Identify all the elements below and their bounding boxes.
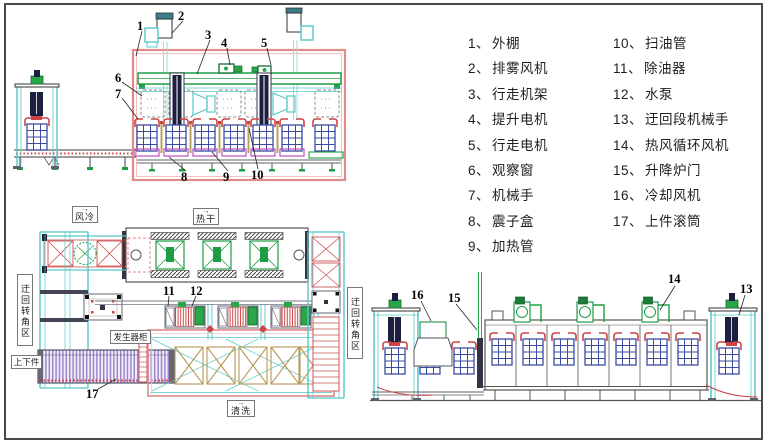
callout-17: 17 — [86, 388, 99, 401]
label-detour-corner-left: 迂回转角区 — [17, 274, 33, 346]
callout-11: 11 — [163, 285, 175, 298]
machine-base — [137, 160, 341, 172]
legend-column-1: 1、外棚 2、排雾风机 3、行走机架 4、提升电机 5、行走电机 6、观察窗 7… — [468, 31, 548, 260]
drawing-sheet: 1、外棚 2、排雾风机 3、行走机架 4、提升电机 5、行走电机 6、观察窗 7… — [0, 0, 768, 444]
legend-item: 14、热风循环风机 — [613, 133, 729, 158]
legend-item: 6、观察窗 — [468, 158, 548, 183]
callout-3: 3 — [205, 29, 211, 42]
legend-item: 12、水泵 — [613, 82, 729, 107]
legend-item: 13、迂回段机械手 — [613, 107, 729, 132]
cleaning-tank — [175, 347, 326, 384]
side-view-cleaning-line — [13, 8, 345, 180]
transfer-car — [84, 294, 122, 320]
label-detour-corner-right: 迂回转角区 — [347, 287, 363, 359]
callout-9: 9 — [223, 171, 229, 184]
basket — [717, 342, 741, 374]
roller-conveyor — [38, 350, 174, 383]
basket — [25, 118, 49, 150]
hot-air-circulation-fan — [577, 297, 604, 322]
detour-gantry-manipulator — [708, 293, 758, 401]
legend-item: 8、震子盒 — [468, 209, 548, 234]
detour-corridor-right — [308, 232, 344, 398]
callout-13: 13 — [740, 283, 753, 296]
pump-unit — [271, 302, 311, 328]
oven-vent — [684, 311, 695, 320]
exhaust-fan — [286, 8, 313, 120]
legend-column-2: 10、扫油管 11、除油器 12、水泵 13、迂回段机械手 14、热风循环风机 … — [613, 31, 729, 234]
pump-unit — [218, 302, 258, 328]
basket — [452, 342, 476, 374]
legend-item: 11、除油器 — [613, 56, 729, 81]
callout-8: 8 — [181, 171, 187, 184]
air-cooling-lane — [42, 234, 126, 273]
label-hot-drying: → 热干 — [193, 208, 219, 225]
entry-gantry-manipulator — [371, 293, 421, 401]
callout-5: 5 — [261, 37, 267, 50]
legend-item: 4、提升电机 — [468, 107, 548, 132]
plan-view — [38, 228, 344, 398]
callout-10: 10 — [251, 169, 264, 182]
return-pipe — [706, 385, 757, 397]
label-generator-cabinet: 发生器柜 — [110, 330, 151, 344]
legend-item: 3、行走机架 — [468, 82, 548, 107]
callout-14: 14 — [668, 273, 681, 286]
furnace-door — [477, 272, 483, 388]
basket-row — [135, 119, 337, 151]
spray-funnel-icon — [193, 93, 295, 115]
pump-unit — [165, 302, 205, 328]
legend-item: 1、外棚 — [468, 31, 548, 56]
exit-platform — [309, 152, 343, 158]
legend-item: 10、扫油管 — [613, 31, 729, 56]
label-cleaning: → 清洗 — [227, 400, 255, 417]
label-air-cooling: → 风冷 — [72, 206, 98, 223]
basket — [383, 342, 407, 374]
hot-air-circulation-fan — [642, 297, 669, 322]
pump-rail — [95, 301, 338, 305]
side-view-drying-oven — [370, 272, 762, 401]
infeed-conveyor — [14, 150, 136, 170]
hot-air-circulation-fan — [514, 297, 541, 322]
cleaning-area-boundary — [148, 330, 334, 396]
callout-2: 2 — [178, 10, 184, 23]
callout-12: 12 — [190, 285, 203, 298]
oven-vent — [492, 311, 503, 320]
entry-base-rail — [372, 387, 484, 400]
legend-item: 5、行走电机 — [468, 133, 548, 158]
legend-item: 16、冷却风机 — [613, 183, 729, 208]
callout-16: 16 — [411, 289, 424, 302]
legend-item: 17、上件滚筒 — [613, 209, 729, 234]
legend-item: 7、机械手 — [468, 183, 548, 208]
label-load-unload: 上下件 — [11, 355, 42, 369]
callout-1: 1 — [137, 20, 143, 33]
callout-4: 4 — [221, 37, 227, 50]
legend-item: 9、加热管 — [468, 234, 548, 259]
callout-7: 7 — [115, 88, 121, 101]
cooling-fan-hopper — [414, 322, 452, 366]
lift-motor — [219, 64, 242, 73]
legend-item: 15、升降炉门 — [613, 158, 729, 183]
callout-6: 6 — [115, 72, 121, 85]
legend-item: 2、排雾风机 — [468, 56, 548, 81]
callout-15: 15 — [448, 292, 461, 305]
